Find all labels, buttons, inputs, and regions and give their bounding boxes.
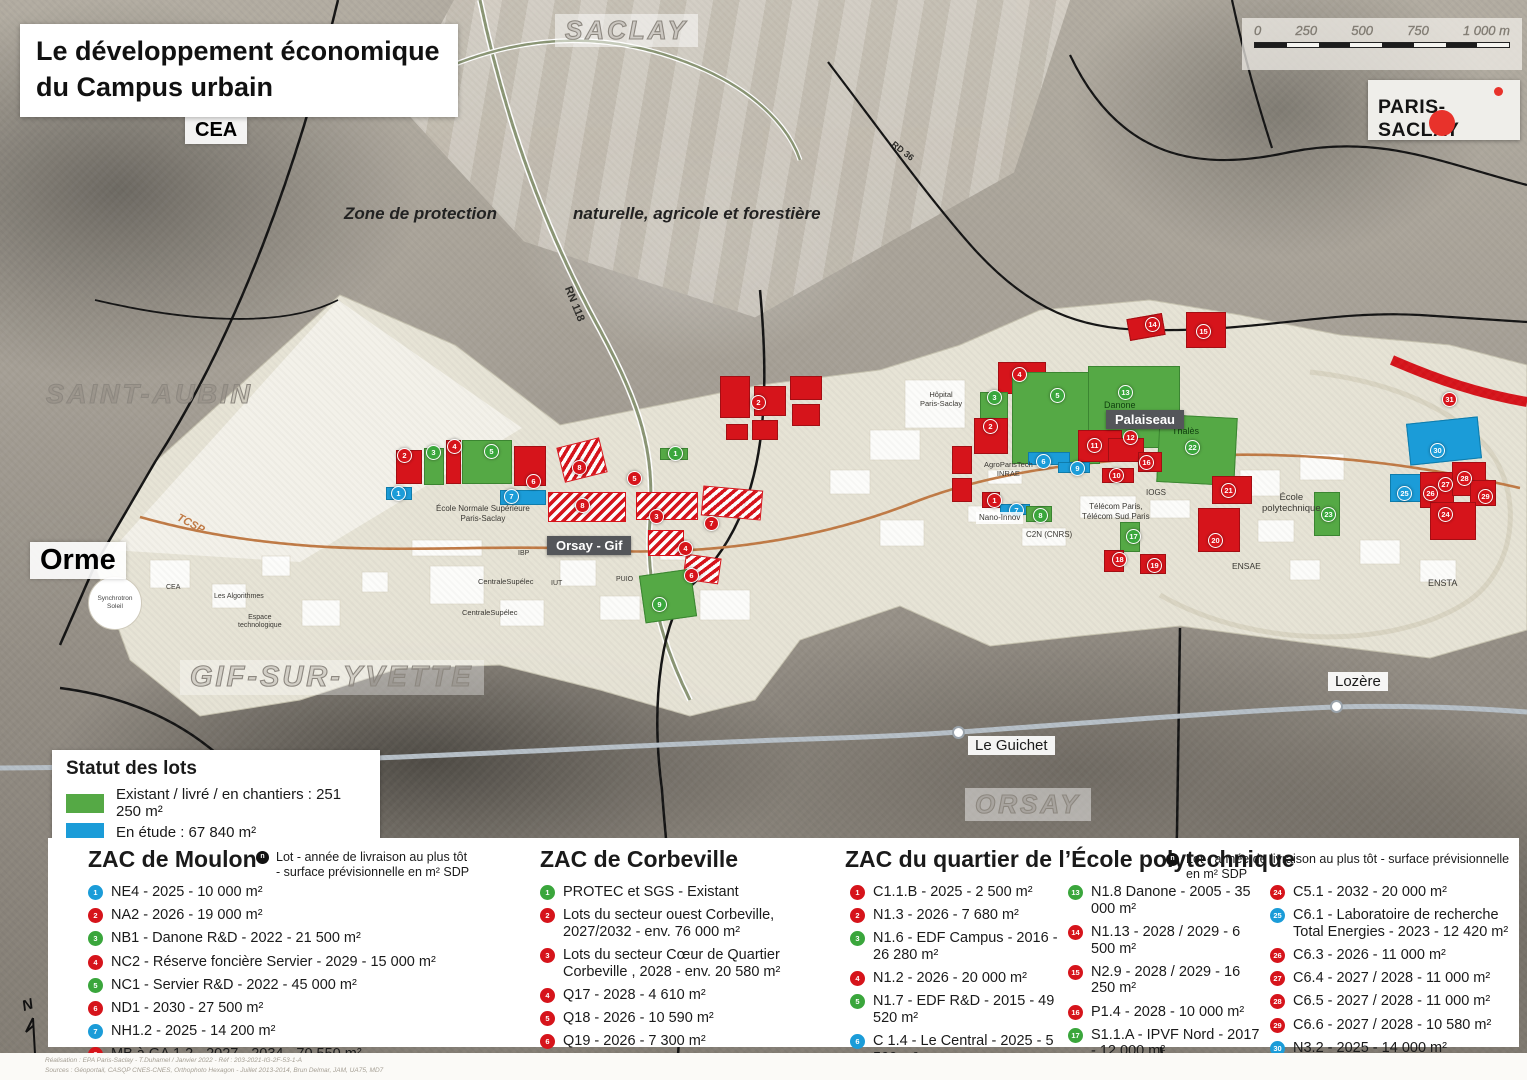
lot-number-badge: 25 — [1270, 908, 1285, 923]
map-marker-27: 27 — [1438, 477, 1453, 492]
lot-item-label: N1.7 - EDF R&D - 2015 - 49 520 m² — [873, 993, 1065, 1026]
lot-note-poly: n Lot - année de livraison au plus tôt -… — [1166, 852, 1516, 882]
map-marker-10: 10 — [1109, 468, 1124, 483]
label-saclay: SACLAY — [555, 14, 698, 47]
lot-item-label: C1.1.B - 2025 - 2 500 m² — [873, 884, 1033, 901]
footer: Réalisation : EPA Paris-Saclay - T.Duham… — [0, 1053, 1527, 1080]
label-nano-innov: Nano-Innov — [976, 512, 1023, 524]
lot-item-label: PROTEC et SGS - Existant — [563, 884, 739, 901]
lot-item-label: C6.5 - 2027 / 2028 - 11 000 m² — [1293, 993, 1490, 1010]
label-lozere: Lozère — [1328, 672, 1388, 691]
lot-item: 6Q19 - 2026 - 7 300 m² — [540, 1033, 820, 1050]
footer-line1: Réalisation : EPA Paris-Saclay - T.Duham… — [45, 1056, 1527, 1066]
lot-item-label: C5.1 - 2032 - 20 000 m² — [1293, 884, 1447, 901]
scale-tick: 250 — [1295, 23, 1317, 38]
map-marker-12: 12 — [1123, 430, 1138, 445]
lot-item-label: N1.2 - 2026 - 20 000 m² — [873, 970, 1027, 987]
map-marker-1: 1 — [668, 446, 683, 461]
lot-item: 2NA2 - 2026 - 19 000 m² — [88, 907, 508, 924]
map-marker-9: 9 — [1070, 461, 1085, 476]
north-arrow-icon — [22, 1012, 44, 1056]
lot-number-badge: 4 — [540, 988, 555, 1003]
label-iogs: IOGS — [1146, 488, 1166, 498]
scale-segment — [1255, 43, 1287, 47]
lot-number-badge: 28 — [1270, 994, 1285, 1009]
label-c2n-cnrs: C2N (CNRS) — [1026, 530, 1072, 540]
label-hopital-paris-saclay: Hôpital Paris-Saclay — [920, 390, 962, 408]
logo-large-dot-icon — [1429, 110, 1455, 136]
zac-moulon-list: 1NE4 - 2025 - 10 000 m²2NA2 - 2026 - 19 … — [88, 884, 508, 1080]
map-marker-16: 16 — [1139, 455, 1154, 470]
lot-number-badge: 3 — [850, 931, 865, 946]
scale-segment — [1414, 43, 1446, 47]
map-marker-2: 2 — [751, 395, 766, 410]
lot-item-label: N1.13 - 2028 / 2029 - 6 500 m² — [1091, 924, 1268, 957]
scale-segment — [1446, 43, 1478, 47]
zac-corbeville-title: ZAC de Corbeville — [540, 846, 738, 873]
label-gif-sur-yvette: GIF-SUR-YVETTE — [180, 660, 484, 695]
lot-item-label: Lots du secteur Cœur de Quartier Corbevi… — [563, 947, 780, 980]
lot-item-label: C6.3 - 2026 - 11 000 m² — [1293, 947, 1446, 964]
map-marker-4: 4 — [678, 541, 693, 556]
map-marker-6: 6 — [1036, 454, 1051, 469]
footer-line2: Sources : Géoportail, CASQP CNES-CNES, O… — [45, 1066, 1527, 1076]
label-ecole-polytechnique: École polytechnique — [1262, 492, 1321, 515]
zac-corbeville-list: 1PROTEC et SGS - Existant2Lots du secteu… — [540, 884, 820, 1080]
lot-item-label: P1.4 - 2028 - 10 000 m² — [1091, 1004, 1244, 1021]
lot-item: 5NC1 - Servier R&D - 2022 - 45 000 m² — [88, 977, 508, 994]
lot-number-badge: 1 — [88, 885, 103, 900]
label-cea: CEA — [185, 117, 247, 144]
lot-number-badge: 27 — [1270, 971, 1285, 986]
map-marker-9: 9 — [652, 597, 667, 612]
lot-number-badge: 1 — [850, 885, 865, 900]
map-marker-24: 24 — [1438, 507, 1453, 522]
lot-item: 29C6.6 - 2027 / 2028 - 10 580 m² — [1270, 1017, 1515, 1034]
lot-item: 24C5.1 - 2032 - 20 000 m² — [1270, 884, 1515, 901]
label-ensta: ENSTA — [1428, 578, 1457, 589]
lot-item: 15N2.9 - 2028 / 2029 - 16 250 m² — [1068, 964, 1268, 997]
lot-note-badge-icon: n — [1166, 853, 1179, 866]
lot-number-badge: 1 — [540, 885, 555, 900]
legend-label: Existant / livré / en chantiers : 251 25… — [116, 786, 366, 820]
zac-moulon-title: ZAC de Moulon — [88, 846, 257, 873]
lot-number-badge: 3 — [88, 931, 103, 946]
map-marker-17: 17 — [1126, 529, 1141, 544]
lot-item-label: NH1.2 - 2025 - 14 200 m² — [111, 1023, 275, 1040]
lot-item-label: Lots du secteur ouest Corbeville, 2027/2… — [563, 907, 774, 940]
lot-item-label: NC1 - Servier R&D - 2022 - 45 000 m² — [111, 977, 357, 994]
label-zone-protection: Zone de protection — [344, 204, 497, 224]
lot-item-label: C6.1 - Laboratoire de recherche Total En… — [1293, 907, 1508, 940]
map-marker-11: 11 — [1087, 438, 1102, 453]
lot-item: 4NC2 - Réserve foncière Servier - 2029 -… — [88, 954, 508, 971]
legend-title: Statut des lots — [66, 758, 366, 780]
label-cea-small: CEA — [166, 584, 180, 592]
label-palaiseau: Palaiseau — [1106, 410, 1184, 429]
scale-bar: 02505007501 000 m — [1242, 18, 1522, 70]
map-plot — [952, 478, 972, 502]
lot-item: 27C6.4 - 2027 / 2028 - 11 000 m² — [1270, 970, 1515, 987]
map-marker-13: 13 — [1118, 385, 1133, 400]
synchrotron-soleil: Synchrotron Soleil — [88, 576, 142, 630]
lot-item-label: N2.9 - 2028 / 2029 - 16 250 m² — [1091, 964, 1268, 997]
map-title-line2: du Campus urbain — [36, 70, 440, 106]
north-arrow: N — [22, 995, 44, 1061]
label-zone-naturelle: naturelle, agricole et forestière — [573, 204, 821, 224]
map-marker-1: 1 — [391, 486, 406, 501]
lot-item: 7NH1.2 - 2025 - 14 200 m² — [88, 1023, 508, 1040]
lot-number-badge: 15 — [1068, 965, 1083, 980]
lot-number-badge: 6 — [88, 1001, 103, 1016]
lot-number-badge: 16 — [1068, 1005, 1083, 1020]
paris-saclay-logo: PARIS-SACLAY — [1368, 80, 1520, 140]
lot-item: 28C6.5 - 2027 / 2028 - 11 000 m² — [1270, 993, 1515, 1010]
map-title-line1: Le développement économique — [36, 34, 440, 70]
lot-number-badge: 3 — [540, 948, 555, 963]
map-plot — [792, 404, 820, 426]
lot-item: 3N1.6 - EDF Campus - 2016 - 26 280 m² — [850, 930, 1065, 963]
map-marker-3: 3 — [987, 390, 1002, 405]
map-plot — [726, 424, 748, 440]
map-marker-4: 4 — [1012, 367, 1027, 382]
map-marker-8: 8 — [572, 460, 587, 475]
lot-number-badge: 29 — [1270, 1018, 1285, 1033]
label-agroparistech: AgroParisTech INRAE — [984, 460, 1033, 478]
lot-item-label: C6.4 - 2027 / 2028 - 11 000 m² — [1293, 970, 1490, 987]
label-orsay: ORSAY — [965, 788, 1091, 821]
lot-number-badge: 7 — [88, 1024, 103, 1039]
lot-item: 25C6.1 - Laboratoire de recherche Total … — [1270, 907, 1515, 940]
lot-item: 26C6.3 - 2026 - 11 000 m² — [1270, 947, 1515, 964]
lot-number-badge: 2 — [88, 908, 103, 923]
map-marker-23: 23 — [1321, 507, 1336, 522]
map-canvas: Le développement économique du Campus ur… — [0, 0, 1527, 1080]
map-marker-5: 5 — [627, 471, 642, 486]
map-marker-30: 30 — [1430, 443, 1445, 458]
map-marker-4: 4 — [447, 439, 462, 454]
lot-item: 16P1.4 - 2028 - 10 000 m² — [1068, 1004, 1268, 1021]
lot-item: 5Q18 - 2026 - 10 590 m² — [540, 1010, 820, 1027]
map-marker-2: 2 — [397, 448, 412, 463]
lot-item: 4Q17 - 2028 - 4 610 m² — [540, 987, 820, 1004]
lot-item-label: N1.6 - EDF Campus - 2016 - 26 280 m² — [873, 930, 1065, 963]
map-marker-2: 2 — [983, 419, 998, 434]
map-marker-18: 18 — [1112, 552, 1127, 567]
lot-item: 2Lots du secteur ouest Corbeville, 2027/… — [540, 907, 820, 940]
lot-item-label: ND1 - 2030 - 27 500 m² — [111, 1000, 263, 1017]
scale-segment — [1382, 43, 1414, 47]
label-espace-technologique: Espace technologique — [238, 614, 282, 631]
lot-item-label: Q19 - 2026 - 7 300 m² — [563, 1033, 706, 1050]
lot-number-badge: 14 — [1068, 925, 1083, 940]
lot-item: 13N1.8 Danone - 2005 - 35 000 m² — [1068, 884, 1268, 917]
map-marker-3: 3 — [649, 509, 664, 524]
lot-item: 14N1.13 - 2028 / 2029 - 6 500 m² — [1068, 924, 1268, 957]
scale-bar-ticks: 02505007501 000 m — [1254, 23, 1510, 38]
label-puio: PUIO — [616, 576, 633, 584]
scale-tick: 0 — [1254, 23, 1261, 38]
label-centralesupelec-2: CentraleSupélec — [462, 608, 517, 617]
lot-number-badge: 2 — [850, 908, 865, 923]
map-marker-6: 6 — [526, 474, 541, 489]
station-dot-lozere — [1330, 700, 1343, 713]
lot-number-badge: 4 — [850, 971, 865, 986]
lot-item-label: NB1 - Danone R&D - 2022 - 21 500 m² — [111, 930, 361, 947]
lot-item: 3NB1 - Danone R&D - 2022 - 21 500 m² — [88, 930, 508, 947]
map-marker-7: 7 — [504, 489, 519, 504]
lot-item: 4N1.2 - 2026 - 20 000 m² — [850, 970, 1065, 987]
lot-item-label: Q17 - 2028 - 4 610 m² — [563, 987, 706, 1004]
lot-note-badge-icon: n — [256, 851, 269, 864]
lot-item: 2N1.3 - 2026 - 7 680 m² — [850, 907, 1065, 924]
zac-poly-list-col1: 1C1.1.B - 2025 - 2 500 m²2N1.3 - 2026 - … — [850, 884, 1065, 1080]
lot-item-label: N1.3 - 2026 - 7 680 m² — [873, 907, 1019, 924]
lot-item-label: NE4 - 2025 - 10 000 m² — [111, 884, 263, 901]
label-ibp: IBP — [518, 550, 529, 558]
map-marker-22: 22 — [1185, 440, 1200, 455]
scale-segment — [1350, 43, 1382, 47]
scale-segment — [1477, 43, 1509, 47]
map-marker-7: 7 — [704, 516, 719, 531]
lot-number-badge: 5 — [850, 994, 865, 1009]
map-marker-26: 26 — [1423, 486, 1438, 501]
map-marker-15: 15 — [1196, 324, 1211, 339]
lot-item-label: Q18 - 2026 - 10 590 m² — [563, 1010, 714, 1027]
label-orme: Orme — [30, 542, 126, 579]
label-saint-aubin: SAINT-AUBIN — [36, 378, 263, 411]
lot-item: 3Lots du secteur Cœur de Quartier Corbev… — [540, 947, 820, 980]
label-les-algorithmes: Les Algorithmes — [214, 593, 264, 601]
lot-item: 1PROTEC et SGS - Existant — [540, 884, 820, 901]
lot-item: 6ND1 - 2030 - 27 500 m² — [88, 1000, 508, 1017]
logo-small-dot-icon — [1494, 87, 1503, 96]
lot-number-badge: 5 — [540, 1011, 555, 1026]
lot-item-label: C6.6 - 2027 / 2028 - 10 580 m² — [1293, 1017, 1491, 1034]
map-marker-19: 19 — [1147, 558, 1162, 573]
label-le-guichet: Le Guichet — [968, 736, 1055, 755]
label-ensae: ENSAE — [1232, 561, 1261, 571]
label-iut: IUT — [551, 580, 562, 588]
scale-tick: 1 000 m — [1463, 23, 1510, 38]
map-marker-3: 3 — [426, 445, 441, 460]
lot-number-badge: 26 — [1270, 948, 1285, 963]
map-plot — [790, 376, 822, 400]
map-marker-5: 5 — [484, 444, 499, 459]
lot-number-badge: 24 — [1270, 885, 1285, 900]
label-orsay-gif-station: Orsay - Gif — [547, 536, 631, 555]
lot-item: 1C1.1.B - 2025 - 2 500 m² — [850, 884, 1065, 901]
lot-number-badge: 6 — [850, 1034, 865, 1049]
lot-number-badge: 6 — [540, 1034, 555, 1049]
map-marker-5: 5 — [1050, 388, 1065, 403]
scale-tick: 750 — [1407, 23, 1429, 38]
map-marker-6: 6 — [684, 568, 699, 583]
map-marker-1: 1 — [987, 493, 1002, 508]
label-centralesupelec-1: CentraleSupélec — [478, 577, 533, 586]
scale-segment — [1287, 43, 1319, 47]
map-plot — [752, 420, 778, 440]
legend-item: Existant / livré / en chantiers : 251 25… — [66, 786, 366, 820]
lot-number-badge: 4 — [88, 955, 103, 970]
lots-list-panel: ZAC de Moulon n Lot - année de livraison… — [48, 838, 1519, 1047]
lot-number-badge: 2 — [540, 908, 555, 923]
scale-segment — [1319, 43, 1351, 47]
map-marker-8: 8 — [575, 498, 590, 513]
lot-item-label: N1.8 Danone - 2005 - 35 000 m² — [1091, 884, 1268, 917]
map-marker-25: 25 — [1397, 486, 1412, 501]
lot-number-badge: 17 — [1068, 1028, 1083, 1043]
map-plot — [952, 446, 972, 474]
label-ens-paris-saclay: École Normale Supérieure Paris-Saclay — [436, 504, 530, 523]
lot-item-label: NA2 - 2026 - 19 000 m² — [111, 907, 263, 924]
map-plot — [1406, 416, 1482, 465]
scale-tick: 500 — [1351, 23, 1373, 38]
map-marker-14: 14 — [1145, 317, 1160, 332]
map-marker-29: 29 — [1478, 489, 1493, 504]
lot-item-label: NC2 - Réserve foncière Servier - 2029 - … — [111, 954, 436, 971]
map-marker-28: 28 — [1457, 471, 1472, 486]
station-dot-le-guichet — [952, 726, 965, 739]
map-plot — [1430, 502, 1476, 540]
lot-item: 1NE4 - 2025 - 10 000 m² — [88, 884, 508, 901]
lot-number-badge: 5 — [88, 978, 103, 993]
map-plot — [720, 376, 750, 418]
map-marker-21: 21 — [1221, 483, 1236, 498]
zac-poly-list-col2: 13N1.8 Danone - 2005 - 35 000 m²14N1.13 … — [1068, 884, 1268, 1080]
map-marker-20: 20 — [1208, 533, 1223, 548]
legend-swatch-g — [66, 794, 104, 813]
map-marker-8: 8 — [1033, 508, 1048, 523]
lot-item: 5N1.7 - EDF R&D - 2015 - 49 520 m² — [850, 993, 1065, 1026]
label-telecom-paris: Télécom Paris, Télécom Sud Paris — [1082, 502, 1150, 521]
lot-number-badge: 13 — [1068, 885, 1083, 900]
map-marker-31: 31 — [1442, 392, 1457, 407]
map-title-box: Le développement économique du Campus ur… — [20, 24, 458, 117]
lot-note-moulon: n Lot - année de livraison au plus tôt -… — [256, 850, 516, 880]
map-plot — [636, 492, 698, 520]
scale-bar-segments — [1254, 42, 1510, 48]
zac-poly-list-col3: 24C5.1 - 2032 - 20 000 m²25C6.1 - Labora… — [1270, 884, 1515, 1080]
